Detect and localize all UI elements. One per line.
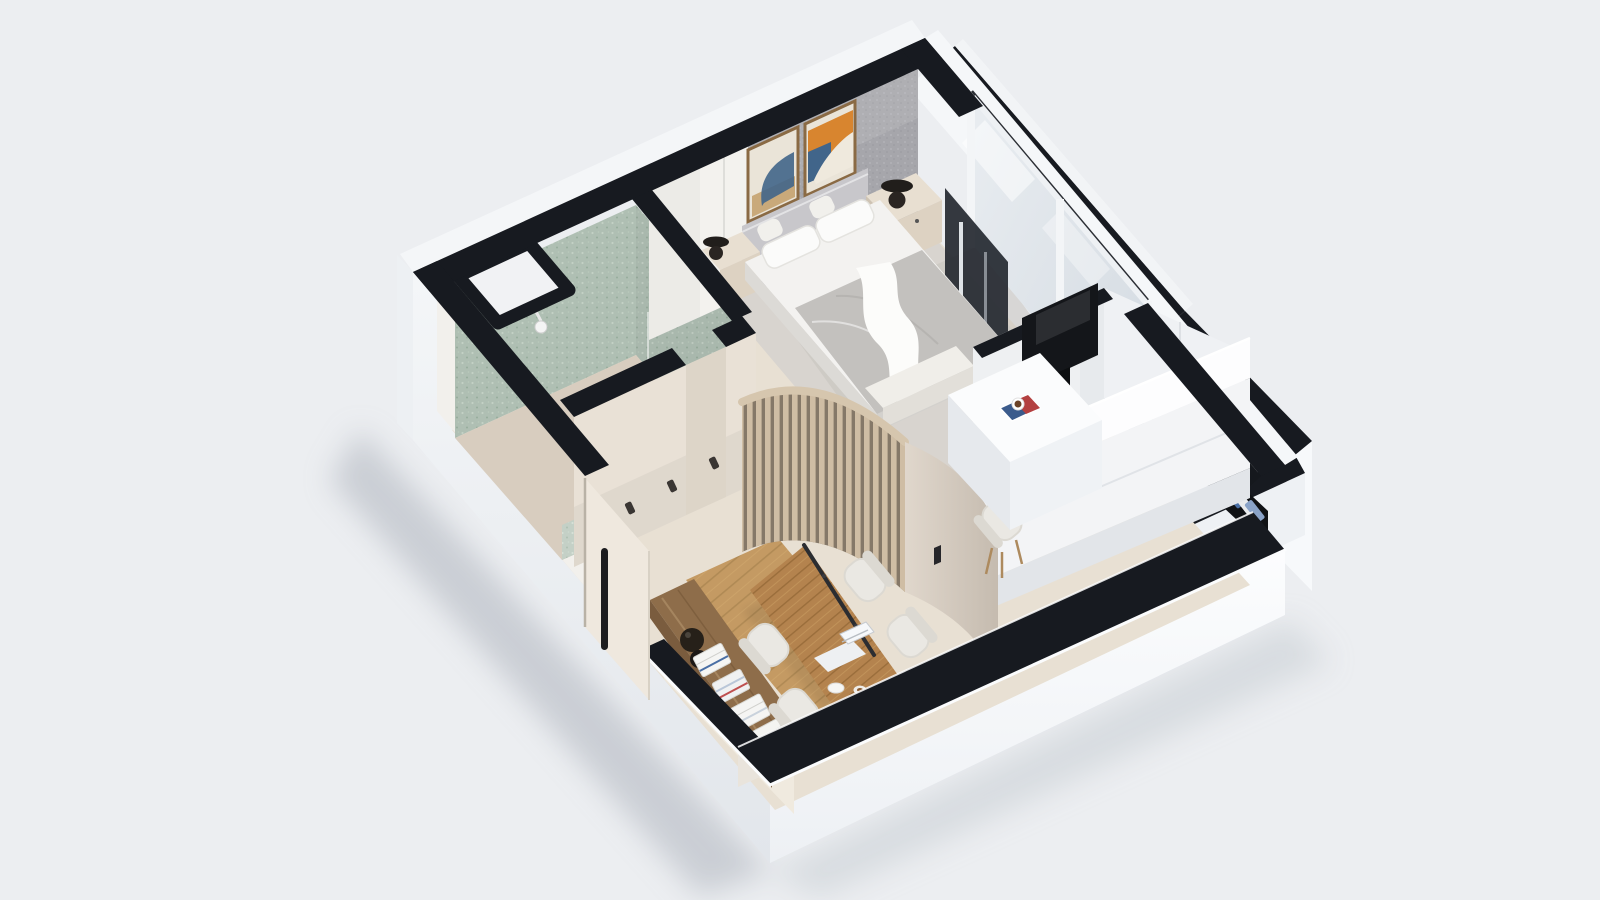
- left-corner-face: [397, 255, 413, 440]
- black-vase: [680, 628, 704, 652]
- lamp-base: [709, 246, 723, 260]
- sliding-handle: [934, 545, 941, 565]
- sphere-lamp: [703, 237, 729, 248]
- shower-head: [535, 321, 547, 333]
- bowl: [828, 683, 844, 693]
- lamp-base: [889, 192, 906, 209]
- sphere-lamp: [881, 180, 913, 193]
- floorplan-render-canvas: [0, 0, 1600, 900]
- isometric-apartment-svg: [0, 0, 1600, 900]
- bathroom-doorway: [686, 347, 726, 515]
- coffee: [1015, 401, 1022, 408]
- pendant-cord: [822, 574, 826, 578]
- drawer-knob: [915, 219, 919, 223]
- vase-highlight: [685, 632, 691, 638]
- door-handle: [601, 548, 608, 650]
